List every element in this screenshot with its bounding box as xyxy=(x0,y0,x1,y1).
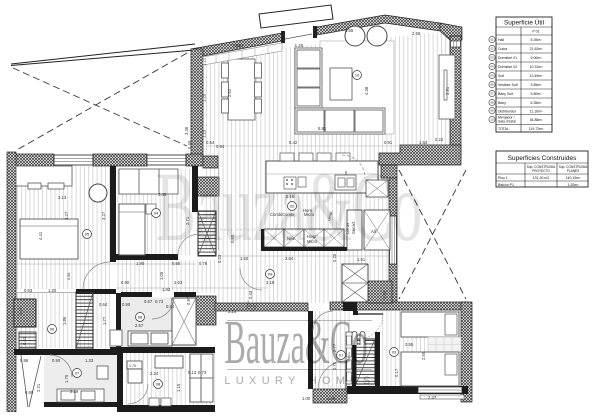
svg-text:0.17: 0.17 xyxy=(394,368,399,377)
svg-text:1.29: 1.29 xyxy=(327,396,336,401)
svg-text:1.53: 1.53 xyxy=(419,140,428,145)
svg-text:0.96: 0.96 xyxy=(20,358,29,363)
svg-text:0.76: 0.76 xyxy=(199,261,208,266)
svg-text:0.90: 0.90 xyxy=(25,390,34,395)
svg-text:0.63: 0.63 xyxy=(24,288,33,293)
svg-text:LUXURY HOMES: LUXURY HOMES xyxy=(224,375,375,387)
svg-text:07: 07 xyxy=(75,371,80,376)
svg-text:0.90: 0.90 xyxy=(121,280,130,285)
svg-text:34.88m²: 34.88m² xyxy=(530,118,544,122)
svg-text:Bany: Bany xyxy=(498,101,506,105)
svg-text:10.31m²: 10.31m² xyxy=(530,65,544,69)
svg-text:Distribuïdor: Distribuïdor xyxy=(498,110,517,114)
svg-text:3.27: 3.27 xyxy=(101,211,106,220)
svg-text:11.16m²: 11.16m² xyxy=(530,110,543,114)
svg-text:Micro: Micro xyxy=(307,239,318,244)
svg-text:2.57: 2.57 xyxy=(135,323,144,328)
svg-text:5.80m²: 5.80m² xyxy=(531,92,543,96)
svg-text:Superficie Útil: Superficie Útil xyxy=(504,18,545,27)
svg-text:3.35: 3.35 xyxy=(184,126,189,135)
svg-text:09: 09 xyxy=(268,272,273,277)
svg-text:1,20m²: 1,20m² xyxy=(568,183,580,187)
svg-text:0.90: 0.90 xyxy=(122,302,131,307)
svg-text:LUXURY REAL ESTATE AGENTS BARC: LUXURY REAL ESTATE AGENTS BARCELONA MALL… xyxy=(196,228,365,232)
svg-text:10: 10 xyxy=(355,73,360,78)
svg-text:04: 04 xyxy=(154,211,159,216)
svg-text:Balcón P1: Balcón P1 xyxy=(498,183,514,187)
svg-text:3.27: 3.27 xyxy=(64,211,69,220)
svg-text:0.60: 0.60 xyxy=(230,234,235,243)
svg-text:0.94: 0.94 xyxy=(216,144,225,149)
svg-text:P 01: P 01 xyxy=(532,30,539,34)
svg-text:6.35m²: 6.35m² xyxy=(531,101,543,105)
svg-text:2.71: 2.71 xyxy=(185,216,190,225)
svg-text:Horn.: Horn. xyxy=(303,208,313,213)
svg-text:2.21: 2.21 xyxy=(36,383,41,392)
svg-text:1.83: 1.83 xyxy=(162,287,171,292)
svg-text:2.55: 2.55 xyxy=(345,28,354,33)
svg-text:2.56: 2.56 xyxy=(412,31,421,36)
svg-text:2.55: 2.55 xyxy=(421,351,426,360)
svg-text:03: 03 xyxy=(490,56,494,60)
svg-text:0.22: 0.22 xyxy=(435,137,444,142)
svg-text:0.50: 0.50 xyxy=(382,290,387,299)
svg-text:08: 08 xyxy=(138,315,143,320)
svg-text:1.70: 1.70 xyxy=(129,364,136,368)
svg-text:1.17: 1.17 xyxy=(18,306,23,315)
svg-text:0.67: 0.67 xyxy=(144,299,153,304)
svg-text:Suit: Suit xyxy=(498,74,504,78)
svg-text:1.86: 1.86 xyxy=(62,316,67,325)
svg-text:1.05: 1.05 xyxy=(159,271,164,280)
svg-text:2.64: 2.64 xyxy=(285,256,294,261)
svg-text:1.15: 1.15 xyxy=(176,383,181,392)
svg-text:2.24: 2.24 xyxy=(228,309,237,314)
svg-text:Superficies Construides: Superficies Construides xyxy=(508,155,577,162)
svg-text:1.33: 1.33 xyxy=(85,358,94,363)
svg-text:02: 02 xyxy=(490,47,494,51)
svg-text:1.15: 1.15 xyxy=(202,129,207,138)
svg-text:1.75: 1.75 xyxy=(64,374,69,383)
svg-text:140,15m²: 140,15m² xyxy=(566,176,582,180)
svg-text:3.81: 3.81 xyxy=(445,86,450,95)
svg-text:1.51: 1.51 xyxy=(357,257,366,262)
svg-text:0.54: 0.54 xyxy=(166,304,175,309)
svg-text:CombiCombi: CombiCombi xyxy=(270,212,294,217)
svg-text:5.81: 5.81 xyxy=(318,126,327,131)
svg-text:13.49m²: 13.49m² xyxy=(530,74,544,78)
svg-text:1.00: 1.00 xyxy=(302,396,311,401)
svg-text:01: 01 xyxy=(490,38,494,42)
svg-text:0.70: 0.70 xyxy=(332,361,337,370)
svg-text:1.21: 1.21 xyxy=(202,57,207,66)
svg-text:07: 07 xyxy=(490,92,494,96)
svg-text:Sala d'estar: Sala d'estar xyxy=(498,120,517,124)
svg-text:2.29: 2.29 xyxy=(70,389,79,394)
svg-text:Nev.: Nev. xyxy=(287,236,295,241)
svg-text:Cuina: Cuina xyxy=(498,47,507,51)
svg-text:5.42: 5.42 xyxy=(289,140,298,145)
svg-text:0.91: 0.91 xyxy=(384,140,393,145)
svg-text:08: 08 xyxy=(156,382,161,387)
svg-text:01: 01 xyxy=(339,353,344,358)
svg-text:Piso 1: Piso 1 xyxy=(498,176,508,180)
svg-text:0.43: 0.43 xyxy=(248,290,253,299)
svg-text:0.40: 0.40 xyxy=(187,140,192,149)
svg-text:06: 06 xyxy=(490,83,494,87)
svg-text:1.50: 1.50 xyxy=(240,256,249,261)
svg-text:2.62: 2.62 xyxy=(227,88,232,97)
svg-text:1.90: 1.90 xyxy=(136,261,145,266)
svg-text:1.25: 1.25 xyxy=(295,43,304,48)
svg-text:06: 06 xyxy=(50,327,55,332)
svg-text:3.85m²: 3.85m² xyxy=(531,83,543,87)
svg-text:3.18: 3.18 xyxy=(266,280,275,285)
svg-text:2.63: 2.63 xyxy=(174,280,183,285)
svg-text:3.55: 3.55 xyxy=(405,342,414,347)
svg-text:131,30 m2: 131,30 m2 xyxy=(533,176,550,180)
svg-text:Bany Suit: Bany Suit xyxy=(498,92,513,96)
svg-text:0.96: 0.96 xyxy=(67,273,71,280)
svg-text:4.38: 4.38 xyxy=(364,86,369,95)
svg-text:03: 03 xyxy=(392,350,397,355)
svg-text:0.13: 0.13 xyxy=(188,370,197,375)
svg-text:1.30: 1.30 xyxy=(48,288,57,293)
svg-text:5 15: 5 15 xyxy=(286,194,295,199)
svg-text:02: 02 xyxy=(290,204,295,209)
svg-text:05: 05 xyxy=(490,74,494,78)
svg-text:Vestidor Suit: Vestidor Suit xyxy=(498,83,518,87)
svg-text:1.77: 1.77 xyxy=(102,316,107,325)
svg-text:2.77: 2.77 xyxy=(332,343,337,352)
svg-text:5.39m²: 5.39m² xyxy=(531,38,543,42)
svg-text:0.73: 0.73 xyxy=(155,299,164,304)
svg-text:09: 09 xyxy=(490,109,494,113)
svg-text:1.20: 1.20 xyxy=(202,93,207,102)
svg-text:9.00m²: 9.00m² xyxy=(531,56,543,60)
svg-text:3.13: 3.13 xyxy=(58,195,67,200)
svg-text:2.24: 2.24 xyxy=(150,371,159,376)
svg-text:0.61: 0.61 xyxy=(22,336,27,345)
svg-text:08: 08 xyxy=(490,101,494,105)
svg-text:0.64: 0.64 xyxy=(99,302,108,307)
svg-text:Dormitori 01: Dormitori 01 xyxy=(498,56,517,60)
svg-text:0.97: 0.97 xyxy=(186,296,191,305)
svg-text:Dormitori 02: Dormitori 02 xyxy=(498,65,517,69)
svg-text:Secad.: Secad. xyxy=(351,221,356,234)
svg-text:05: 05 xyxy=(85,232,90,237)
svg-text:0.73: 0.73 xyxy=(198,370,207,375)
svg-text:0.54: 0.54 xyxy=(206,140,215,145)
svg-text:3.45: 3.45 xyxy=(158,192,167,197)
svg-text:TOTAL: TOTAL xyxy=(498,127,509,131)
svg-text:Lia us: Lia us xyxy=(345,223,350,234)
svg-text:0.20: 0.20 xyxy=(332,253,337,262)
svg-text:0.90: 0.90 xyxy=(172,261,181,266)
svg-text:2.63: 2.63 xyxy=(232,43,241,48)
svg-text:Hall: Hall xyxy=(498,38,504,42)
svg-text:0.23: 0.23 xyxy=(217,254,222,263)
svg-text:4.41: 4.41 xyxy=(38,231,43,240)
svg-text:119.72m²: 119.72m² xyxy=(529,127,544,131)
svg-text:PLANES: PLANES xyxy=(567,169,580,173)
svg-text:PROYECTO: PROYECTO xyxy=(532,169,550,173)
svg-text:21.62m²: 21.62m² xyxy=(530,47,544,51)
svg-text:04: 04 xyxy=(490,65,494,69)
svg-text:All.: All. xyxy=(371,229,377,234)
svg-text:Bauza&Co: Bauza&Co xyxy=(224,308,367,377)
svg-text:10: 10 xyxy=(490,118,494,122)
svg-text:2.47: 2.47 xyxy=(428,395,437,400)
svg-text:0.90: 0.90 xyxy=(52,358,61,363)
